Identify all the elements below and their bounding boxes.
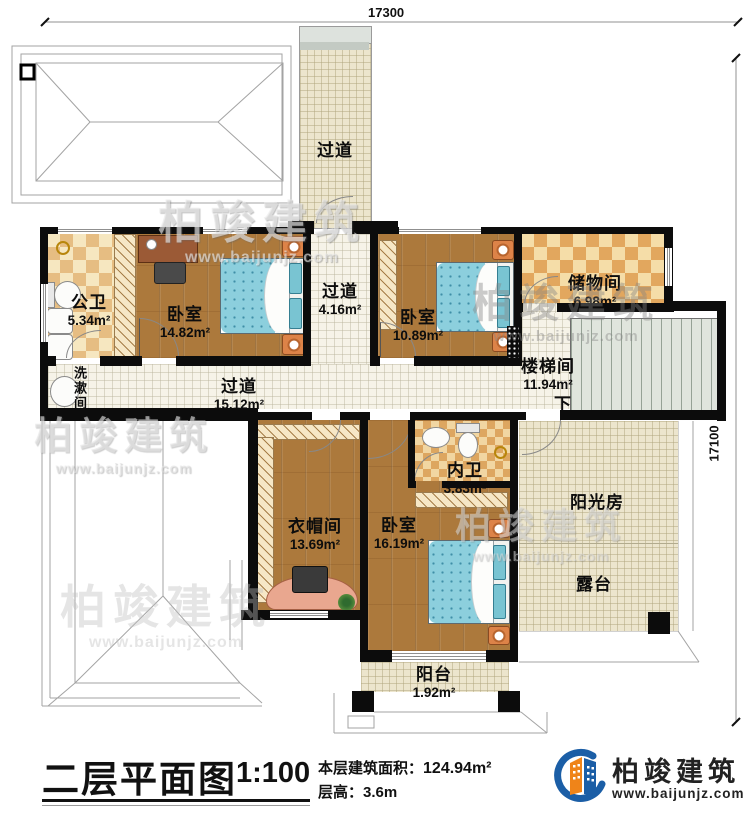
floor-area-value: 124.94m² [423,760,492,777]
window [58,227,112,234]
nightstand [488,626,510,645]
label-bedroom-1: 卧室14.82m² [160,300,210,340]
brand-url: www.baijunjz.com [612,786,745,801]
label-sunroom: 阳光房 [570,488,624,513]
floor-height-row: 层高：3.6m [318,781,397,802]
floor-area-row: 本层建筑面积：124.94m² [318,757,492,778]
window [41,284,48,342]
label-stairwell: 楼梯间11.94m² [521,352,575,392]
floor-area-label: 本层建筑面积： [318,760,423,777]
computer [292,566,328,593]
floor-height-label: 层高： [318,784,363,801]
stairs [570,318,719,413]
bedroom-1-wardrobe [114,234,136,358]
floor-plan: 17300 17100 [0,0,750,816]
label-balcony: 阳台1.92m² [413,660,456,700]
label-terrace: 露台 [576,570,612,595]
label-ensuite-bath: 内卫3.83m² [444,456,487,496]
label-bedroom-2: 卧室10.89m² [393,303,443,343]
towel-ring [494,446,507,459]
column [498,691,520,712]
label-stairs-down: 下 [554,390,572,415]
bed [428,540,510,624]
label-storage: 储物间6.98m² [568,269,622,309]
dimension-right: 17100 [707,414,722,474]
column [648,612,670,634]
floor-height-value: 3.6m [363,784,397,801]
brand-logo-icon [550,746,606,806]
window [270,611,328,618]
title-underline [42,799,310,802]
stair-wall-hatched [507,326,519,358]
sunroom-terrace-divider [519,543,678,544]
chimney [21,65,34,79]
room-sunroom-terrace [519,421,678,631]
drawing-scale: 1:100 [236,757,310,790]
window [399,227,481,234]
column [352,691,374,712]
window [665,248,672,286]
label-bedroom-3: 卧室16.19m² [374,511,424,551]
desk-lamp [146,239,157,250]
nightstand [492,240,514,260]
storage-door-gap [523,303,557,313]
corridor-top-window-band [300,42,369,50]
page-title: 二层平面图 [42,749,237,803]
bed [220,258,306,334]
plant [338,594,355,611]
label-washroom: 洗漱间 [70,366,89,411]
dimension-top: 17300 [368,5,404,20]
label-corridor-small: 过道4.16m² [319,277,362,317]
nightstand [488,519,510,538]
label-corridor-top: 过道 [317,136,353,161]
tv [154,262,186,284]
label-cloakroom: 衣帽间13.69m² [288,512,342,552]
label-public-bath: 公卫5.34m² [68,288,111,328]
bed [436,262,514,332]
label-corridor-main: 过道15.12m² [214,372,264,412]
brand-name: 柏竣建筑 [612,750,740,789]
title-underline-2 [42,805,310,806]
cloakroom-closet-left [256,437,274,603]
desk [138,235,198,263]
towel-ring [56,241,70,255]
sink [422,427,450,448]
brand-logo: 柏竣建筑 www.baijunjz.com [550,744,740,808]
window [203,227,247,234]
toilet [458,432,478,458]
room-corridor-main [48,364,570,409]
